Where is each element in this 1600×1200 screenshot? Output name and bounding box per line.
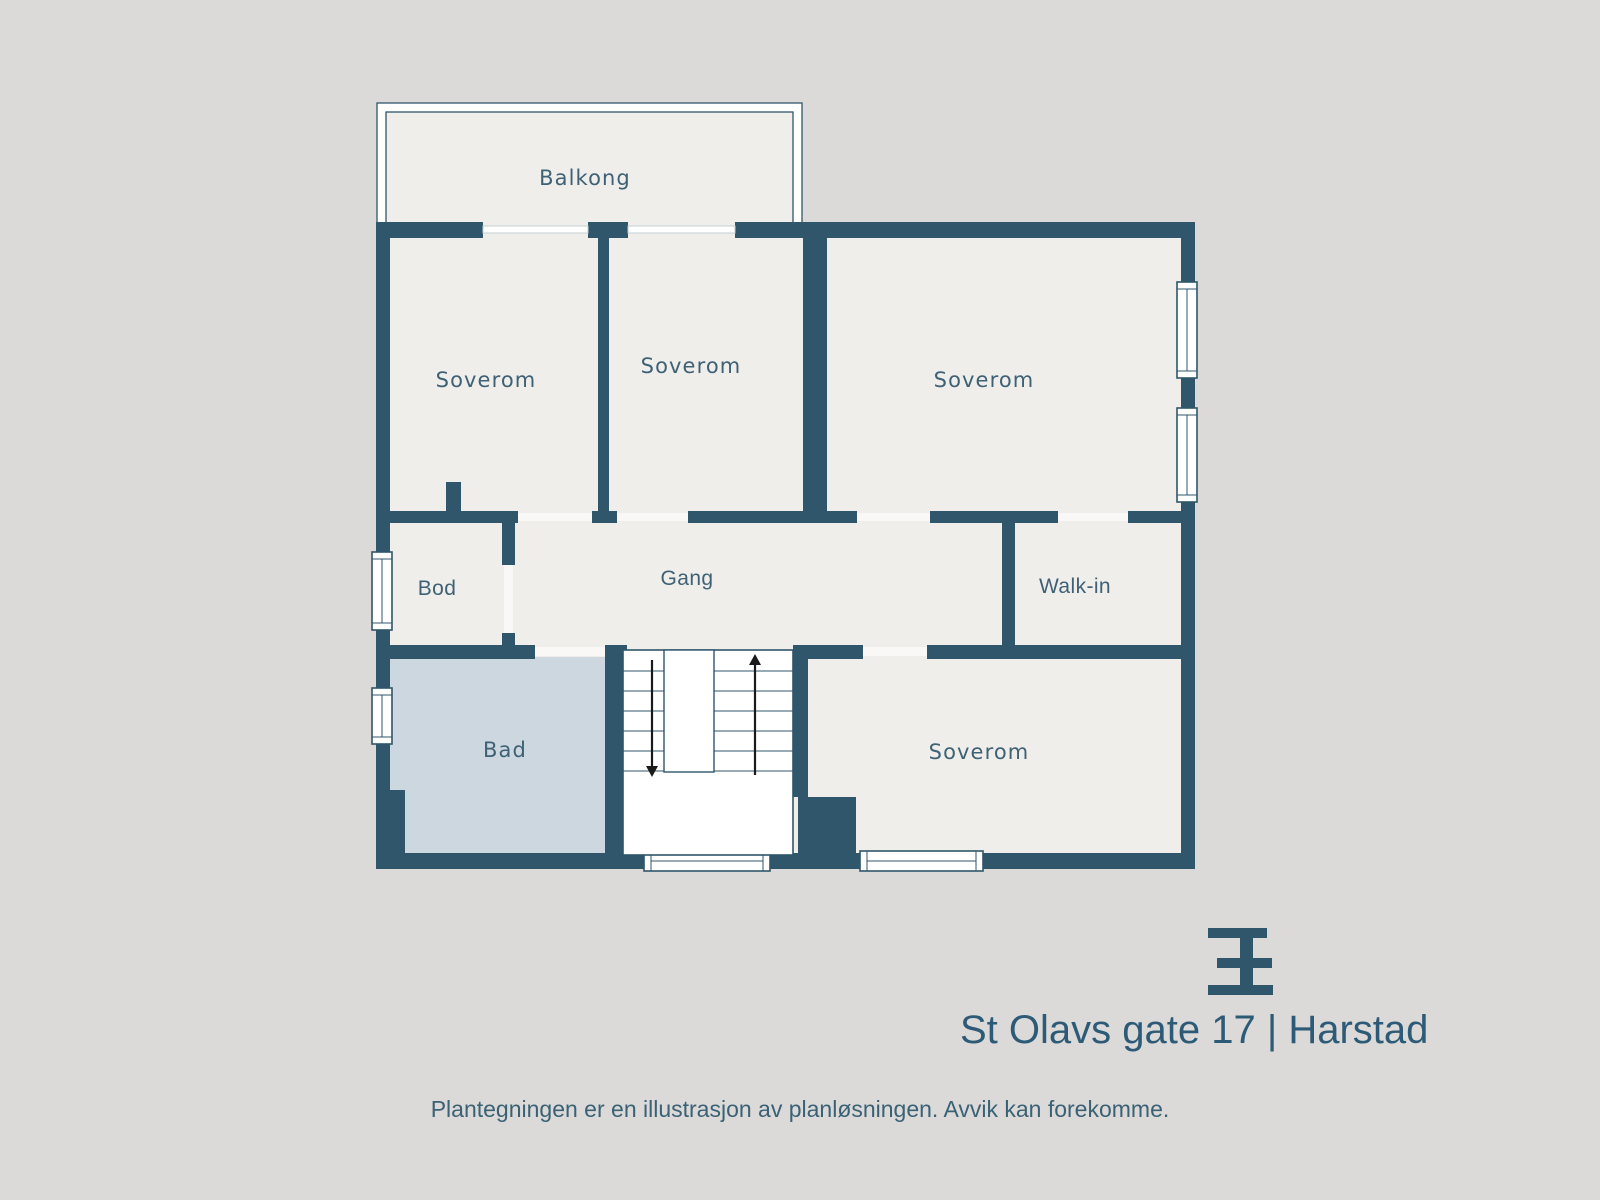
floorplan-page: BalkongSoveromSoveromSoveromBodGangWalk-… — [0, 0, 1600, 1200]
room-label-walk-in: Walk-in — [1039, 575, 1111, 598]
wall-segment — [502, 511, 515, 565]
wall-segment — [798, 797, 856, 855]
door-threshold — [617, 513, 688, 521]
room-label-soverom-4: Soverom — [929, 740, 1030, 764]
door-threshold — [504, 565, 513, 633]
wall-segment — [605, 645, 623, 855]
door-threshold — [518, 513, 592, 521]
balcony — [377, 103, 802, 223]
wall-segment — [376, 222, 483, 238]
wall-segment — [930, 511, 1058, 523]
wall-segment — [793, 645, 808, 797]
footer-disclaimer: Plantegningen er en illustrasjon av plan… — [0, 1094, 1600, 1124]
wall-segment — [446, 482, 461, 523]
staircase — [623, 650, 793, 855]
wall-segment — [927, 645, 1181, 659]
wall-segment — [376, 222, 390, 869]
logo-bar — [1240, 928, 1253, 995]
wall-segment — [1128, 511, 1181, 523]
door-threshold — [857, 513, 930, 521]
wall-segment — [376, 790, 405, 855]
wall-segment — [376, 645, 535, 659]
address-text: St Olavs gate 17 | Harstad — [960, 1008, 1400, 1052]
balcony-door-glass — [628, 226, 735, 233]
logo-bar — [1208, 928, 1267, 938]
wall-segment — [598, 232, 609, 523]
door-threshold — [535, 647, 605, 656]
room-label-soverom-1: Soverom — [436, 368, 537, 392]
wall-segment — [803, 232, 827, 523]
wall-segment — [688, 511, 857, 523]
wall-segment — [1002, 511, 1015, 657]
room-label-soverom-3: Soverom — [934, 368, 1035, 392]
door-threshold — [863, 647, 927, 656]
balcony-door-glass — [483, 226, 588, 233]
room-label-bod: Bod — [418, 577, 457, 600]
room-label-bad: Bad — [483, 738, 527, 762]
stair-void — [664, 650, 714, 772]
room-label-balkong: Balkong — [539, 166, 631, 190]
room-label-soverom-2: Soverom — [641, 354, 742, 378]
room-label-gang: Gang — [661, 567, 714, 590]
door-threshold — [1058, 513, 1128, 521]
brand-logo-icon — [1208, 928, 1273, 995]
